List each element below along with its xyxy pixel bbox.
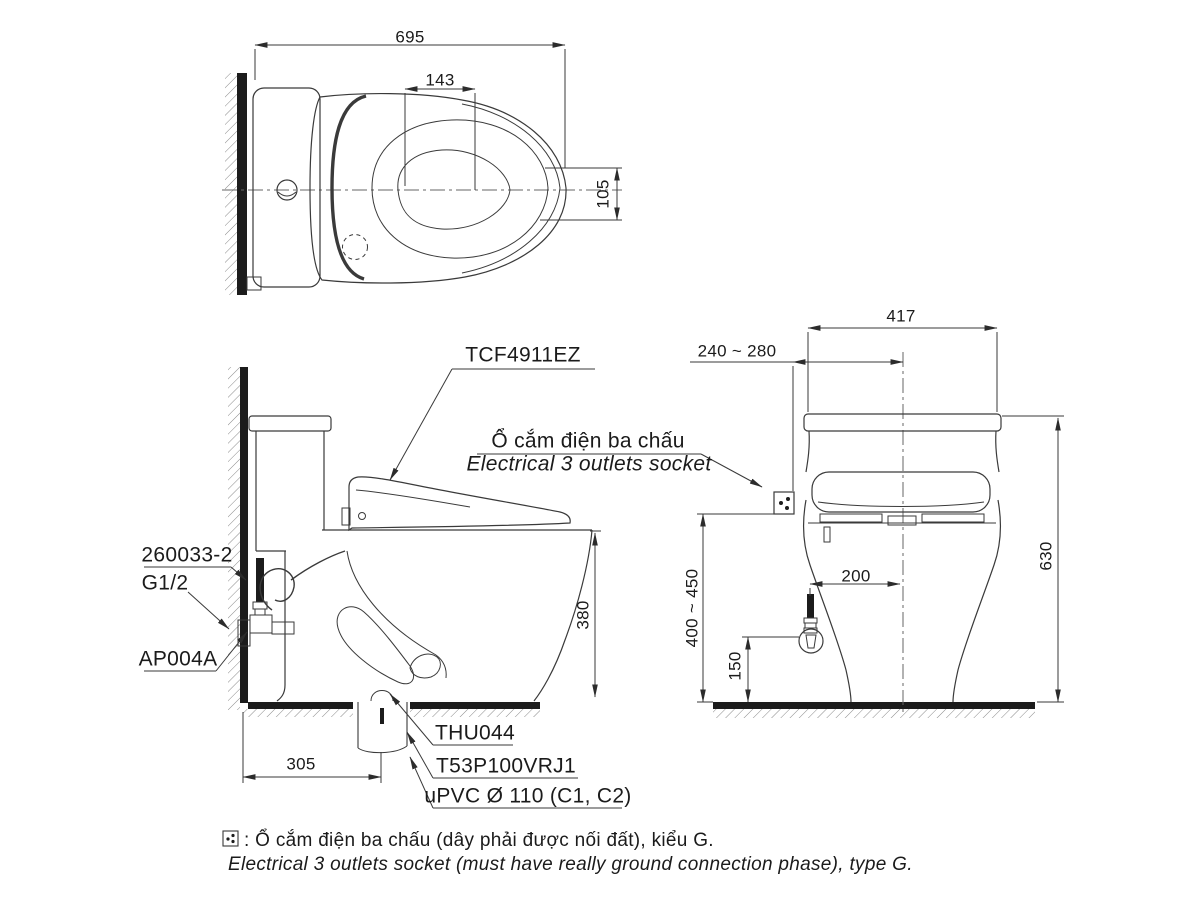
dim-side-wall-to-drain: 305 [286,756,315,773]
socket-note-en: Electrical 3 outlets socket [466,454,711,475]
dim-side-rim-height: 380 [575,600,592,629]
legend-text-vi: : Ổ cắm điện ba chấu (dây phải được nối … [244,831,714,850]
dim-front-valve-offset: 200 [841,568,870,585]
power-socket-legend-icon [223,831,238,846]
callout-thread: G1/2 [142,573,189,594]
dim-top-offset: 105 [595,179,612,208]
product-code-label: TCF4911EZ [465,345,581,366]
callout-drain-flange: THU044 [435,723,515,744]
callout-drain-joint: T53P100VRJ1 [436,756,576,777]
dim-front-tank-width: 417 [886,308,915,325]
legend-text-en: Electrical 3 outlets socket (must have r… [228,855,913,874]
dim-front-socket-offset: 240 ~ 280 [698,343,777,360]
callout-supply-hose: 260033-2 [141,545,232,566]
power-socket-icon [774,492,794,514]
dim-top-width: 695 [395,29,424,46]
top-view-drawing [222,45,622,295]
drawing-canvas: 695 143 105 TCF4911EZ Ổ cắm điện ba chấu… [0,0,1200,900]
stop-valve-front [799,594,823,653]
front-view-drawing [690,328,1064,718]
socket-note-vi: Ổ cắm điện ba chấu [491,431,684,452]
dim-top-inner: 143 [425,72,454,89]
dim-front-total-height: 630 [1038,541,1055,570]
callout-angle-valve: AP004A [139,649,218,670]
callout-drain-pipe: uPVC Ø 110 (C1, C2) [424,786,631,807]
dim-front-socket-height: 400 ~ 450 [684,569,701,648]
dim-front-valve-height: 150 [727,651,744,680]
